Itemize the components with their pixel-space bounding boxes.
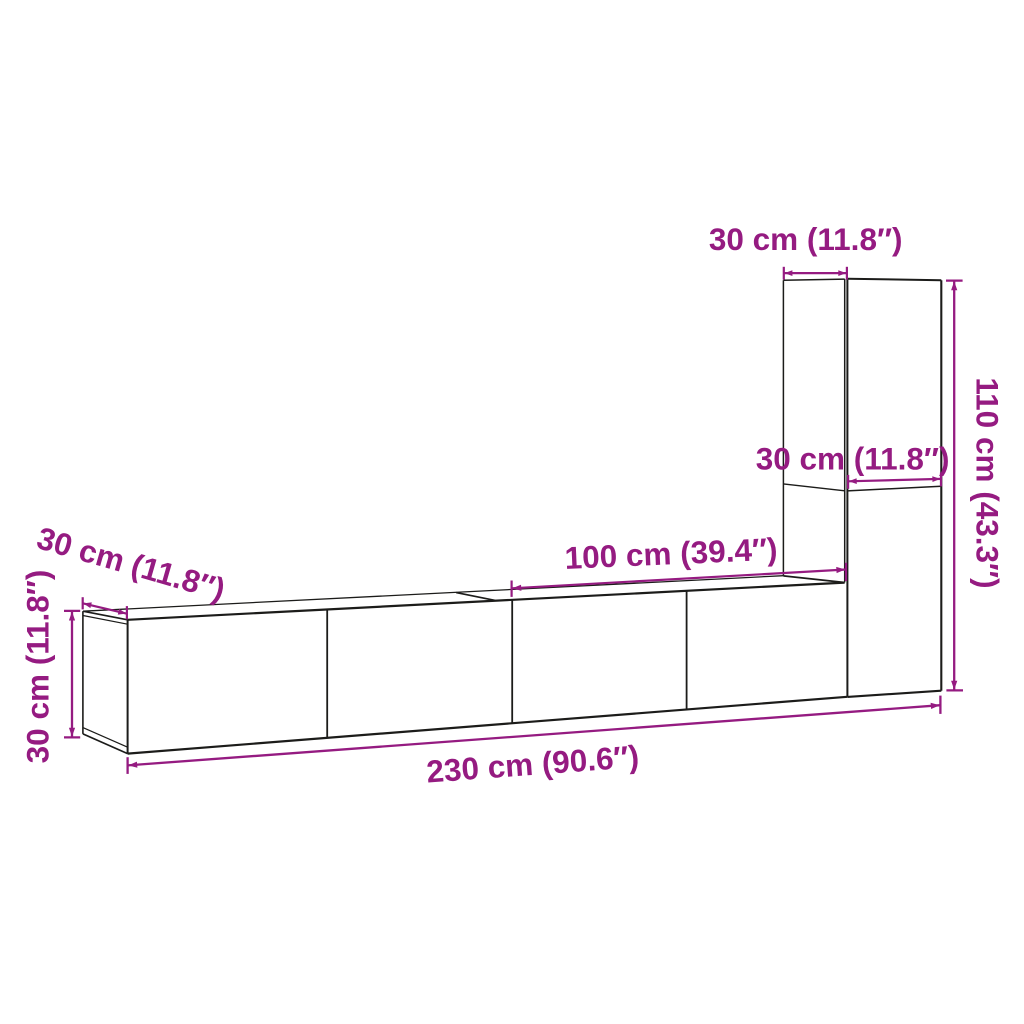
svg-text:30 cm (11.8″): 30 cm (11.8″) bbox=[19, 570, 55, 764]
svg-text:110 cm (43.3″): 110 cm (43.3″) bbox=[970, 377, 1006, 588]
svg-text:30 cm (11.8″): 30 cm (11.8″) bbox=[709, 221, 903, 257]
svg-text:30 cm (11.8″): 30 cm (11.8″) bbox=[756, 440, 950, 476]
